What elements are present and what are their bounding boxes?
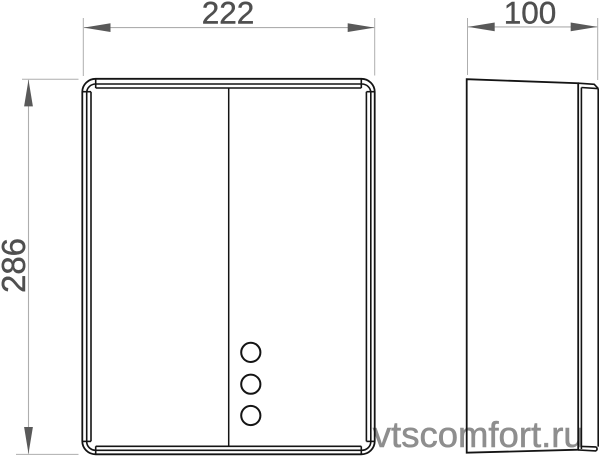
svg-text:100: 100 xyxy=(504,0,557,31)
svg-text:286: 286 xyxy=(0,238,32,293)
svg-text:vtscomfort.ru: vtscomfort.ru xyxy=(373,414,584,455)
svg-text:222: 222 xyxy=(202,0,255,31)
